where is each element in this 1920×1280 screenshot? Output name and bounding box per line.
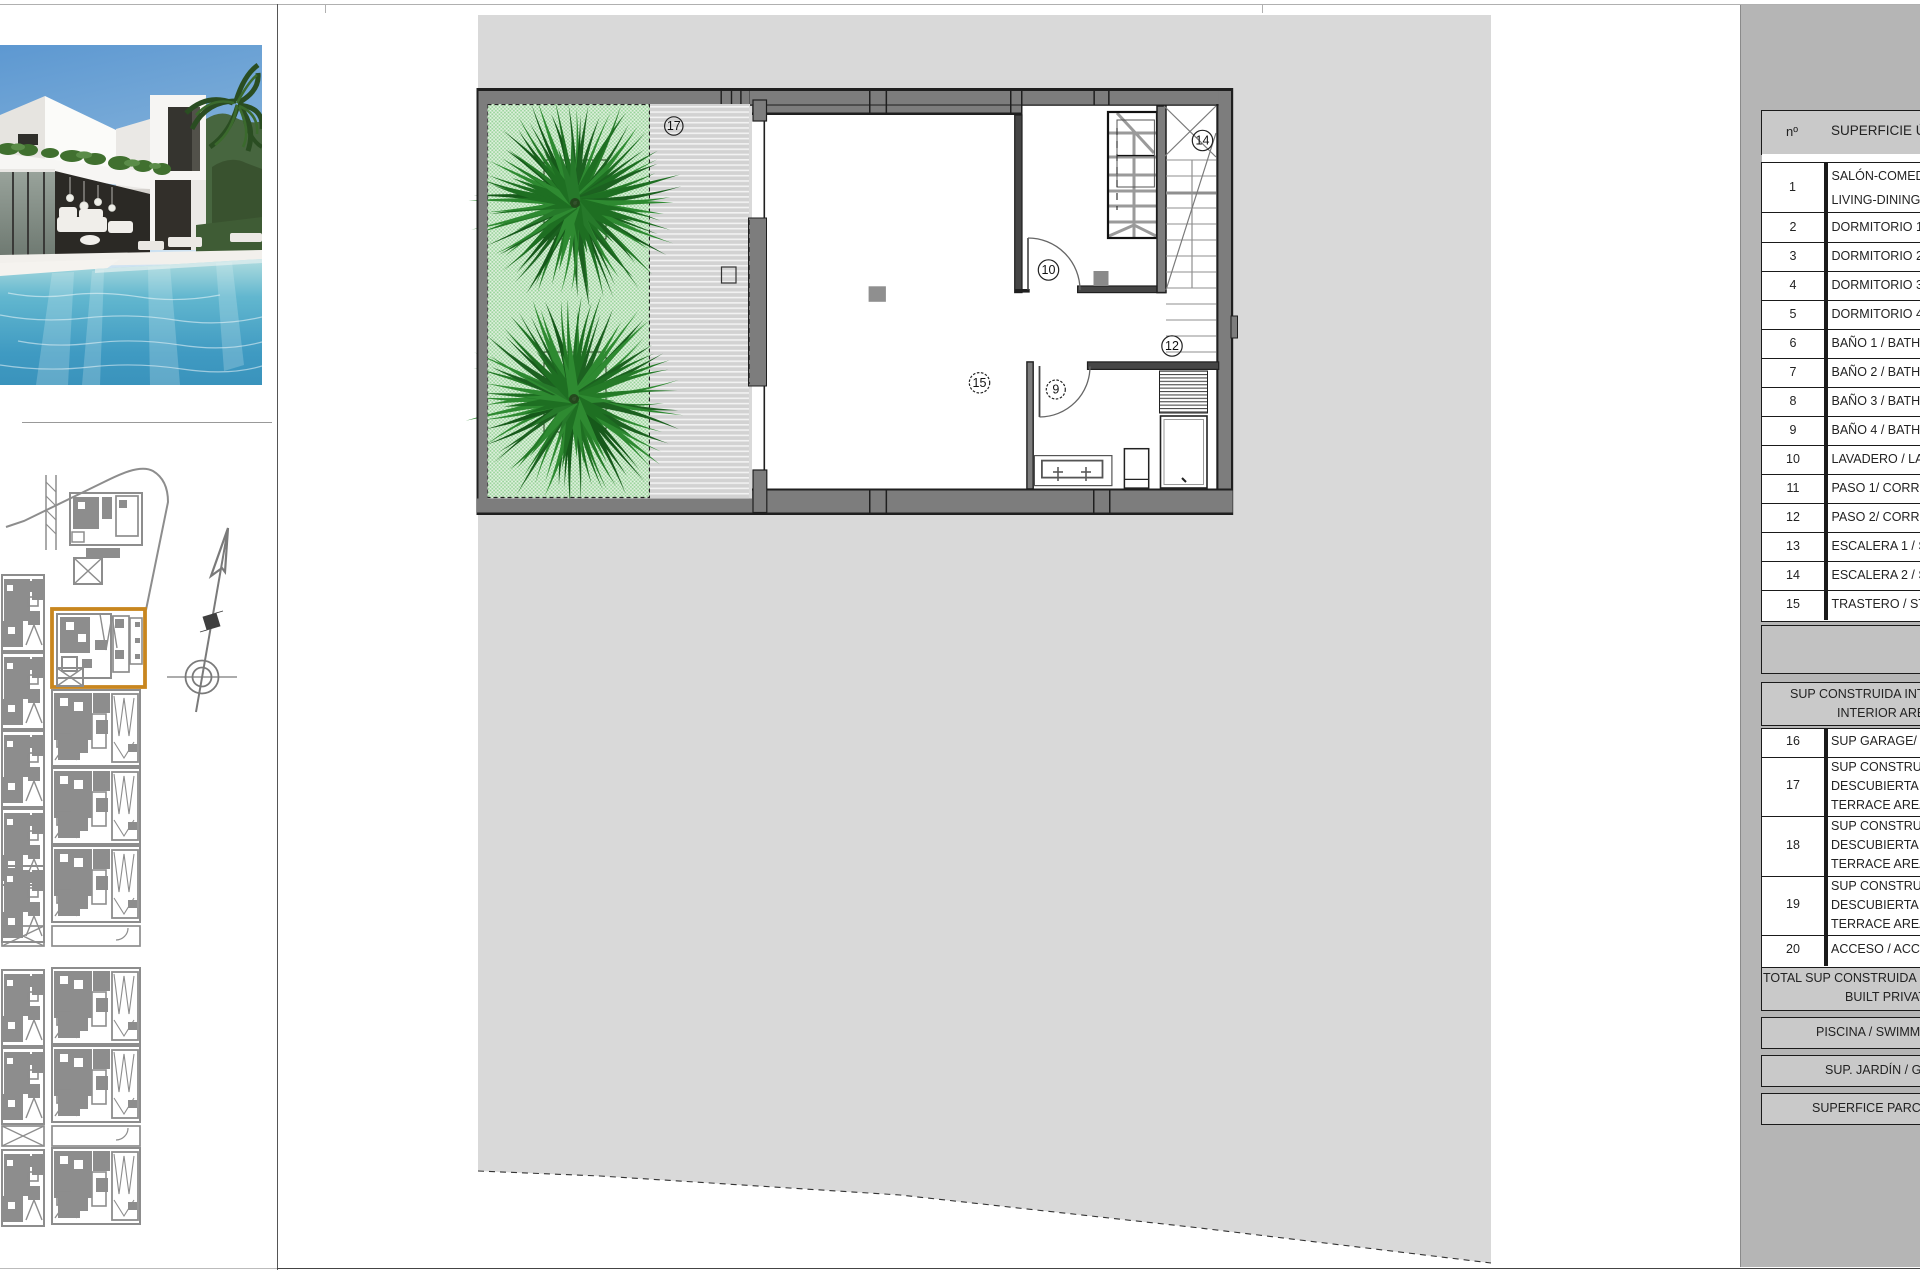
svg-text:9: 9: [1052, 383, 1059, 397]
svg-text:15: 15: [973, 376, 987, 390]
svg-text:10: 10: [1042, 263, 1056, 277]
svg-text:17: 17: [667, 119, 681, 133]
svg-text:14: 14: [1196, 134, 1210, 148]
svg-text:12: 12: [1165, 339, 1179, 353]
